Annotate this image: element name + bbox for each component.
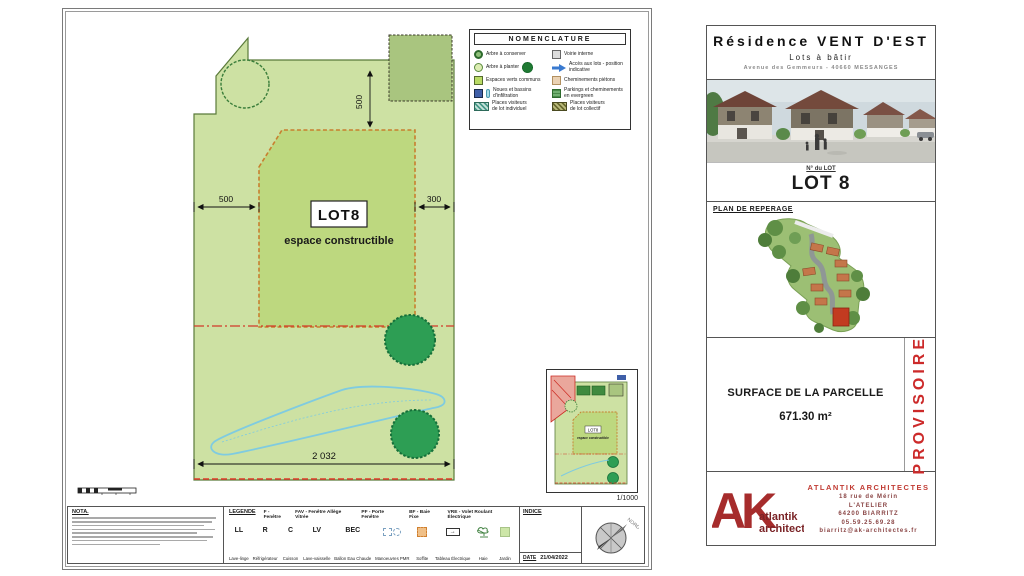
green-space-symbol — [474, 76, 483, 85]
architect-contact: ATLANTIK ARCHITECTES 18 rue de Mérin L'A… — [807, 483, 930, 535]
logo-word-architectes: architectes — [759, 523, 804, 535]
date-label: DATE — [523, 555, 536, 561]
location-map-image — [707, 210, 935, 336]
nomenclature-item: Parkings et cheminements en evergreen — [552, 87, 626, 100]
nomenclature-item: Voirie interne — [552, 48, 626, 61]
nomenclature-left-column: Arbre à conserver Arbre à planter Espace… — [474, 48, 548, 113]
indice-box: INDICE DATE 21/04/2022 — [520, 507, 582, 563]
legende-box: LEGENDE F - Fenêtre FAV - Fenêtre Allège… — [224, 507, 520, 563]
legende-item: Soffite — [413, 523, 431, 561]
tree-conserved-2 — [391, 410, 439, 458]
pmr-icon — [383, 528, 392, 536]
legende-def: VRE - Volet Roulant Électrique — [448, 510, 514, 520]
legende-item: C Cuisson — [281, 523, 299, 561]
nomenclature-item: Places visiteurs de lot individuel — [474, 100, 548, 113]
plan-sheet: LOT8 espace constructible 500 300 500 2 … — [62, 8, 652, 570]
nota-title: NOTA. — [72, 509, 219, 515]
evergreen-parking-symbol — [552, 89, 561, 98]
legende-item: R Réfrigérateur — [253, 523, 278, 561]
basin-symbol — [474, 89, 483, 98]
north-arrow-icon: NORD — [587, 510, 639, 560]
nota-text-line — [72, 521, 212, 523]
lot-number-label: N° du LOT — [707, 166, 935, 172]
garden-icon — [500, 527, 510, 537]
architect-email: biarritz@ak-architectes.fr — [807, 528, 930, 534]
nomenclature-item: Cheminements piétons — [552, 74, 626, 87]
legende-def: PF - Porte Fenêtre — [361, 510, 401, 520]
architect-logo: AK atlantik architectes — [712, 478, 804, 540]
constructible-area — [259, 130, 415, 327]
visitor-parking-individual-symbol — [474, 102, 489, 111]
nomenclature-item: Places visiteurs de lot collectif — [552, 100, 626, 113]
access-arrow-icon — [552, 64, 566, 72]
nota-text-line — [72, 525, 204, 527]
scale-bar — [78, 488, 136, 495]
status-provisoire: PROVISOIRE — [904, 338, 935, 471]
electrical-panel-icon: → — [446, 528, 460, 536]
title-bar: NOTA. LEGENDE F - Fenêtre FAV - Fenêtre … — [67, 506, 645, 564]
legende-item: Jardin — [496, 523, 514, 561]
dimension-label-left: 500 — [219, 194, 233, 204]
inset-lot-sublabel: espace constructible — [577, 436, 609, 440]
project-address: Avenue des Gemmeurs - 40660 MESSANGES — [707, 65, 935, 71]
nomenclature-title: NOMENCLATURE — [474, 33, 626, 45]
nomenclature-item: Arbre à planter — [474, 61, 548, 74]
architect-phone: 05.59.25.69.28 — [807, 520, 930, 526]
title-block-panel: Résidence VENT D'EST Lots à bâtir Avenue… — [706, 25, 936, 546]
legende-item: LL Lave-linge — [229, 523, 249, 561]
lot-sublabel: espace constructible — [284, 235, 393, 247]
inset-lot-label: LOT8 — [588, 428, 599, 433]
nomenclature-item: Noues et bassins d'infiltration — [474, 87, 548, 100]
lot-number-section: N° du LOT LOT 8 — [707, 163, 935, 202]
logo-word-atlantik: atlantik — [759, 511, 798, 523]
lot-number: LOT 8 — [707, 173, 935, 195]
nomenclature-legend: NOMENCLATURE Arbre à conserver Arbre à p… — [469, 29, 631, 130]
architect-address-1: 18 rue de Mérin — [807, 494, 930, 500]
inset-scale-label: 1/1000 — [546, 495, 638, 502]
date-value: 21/04/2022 — [540, 555, 568, 561]
lot-label: LOT8 — [318, 207, 360, 224]
tree-texture-symbol — [522, 62, 533, 73]
surface-section: SURFACE DE LA PARCELLE 671.30 m² PROVISO… — [707, 338, 935, 471]
surface-label: SURFACE DE LA PARCELLE — [727, 387, 883, 399]
tree-outline-topleft — [221, 60, 269, 108]
dimension-label-vertical: 500 — [354, 95, 364, 109]
key-plan-drawing: LOT8 espace constructible — [547, 370, 636, 491]
road-symbol — [552, 50, 561, 59]
dimension-label-bottom: 2 032 — [312, 451, 336, 462]
key-plan-inset: LOT8 espace constructible — [546, 369, 638, 493]
swale-symbol — [486, 89, 490, 98]
location-map-section: PLAN DE REPERAGE — [707, 202, 935, 338]
nota-text-line — [72, 517, 216, 519]
nota-box: NOTA. — [68, 507, 224, 563]
north-label: NORD — [626, 517, 639, 531]
architect-footer: AK atlantik architectes ATLANTIK ARCHITE… — [707, 471, 935, 545]
legende-item: Haie — [474, 523, 492, 561]
surface-value: 671.30 m² — [779, 411, 831, 423]
legende-item: Manoeuvres PMR — [375, 523, 409, 561]
tree-plant-symbol — [474, 63, 483, 72]
dimension-label-right: 300 — [427, 194, 441, 204]
legende-def: FAV - Fenêtre Allège Vitrée — [295, 510, 353, 520]
architect-address-2: L'ATELIER — [807, 503, 930, 509]
project-subtitle: Lots à bâtir — [707, 53, 935, 62]
nota-text-line — [72, 536, 213, 538]
indice-label: INDICE — [520, 507, 581, 517]
tree-conserved-1 — [385, 315, 435, 365]
visitor-parking-collective-symbol — [552, 102, 567, 111]
compass-box: NORD — [582, 507, 644, 563]
nota-text-line — [72, 540, 207, 542]
page: LOT8 espace constructible 500 300 500 2 … — [0, 0, 1024, 576]
architect-address-3: 64200 BIARRITZ — [807, 511, 930, 517]
project-title: Résidence VENT D'EST — [707, 33, 935, 49]
legende-def: BF - Baie Fixe — [409, 510, 439, 520]
hedge-tree-icon — [476, 526, 490, 538]
pedestrian-path-symbol — [552, 76, 561, 85]
tree-conserve-symbol — [474, 50, 483, 59]
legende-title: LEGENDE — [229, 509, 256, 515]
nota-text-line — [72, 532, 197, 534]
nota-text-line — [72, 544, 160, 546]
nota-text-line — [72, 529, 215, 531]
nomenclature-item: Espaces verts communs — [474, 74, 548, 87]
nomenclature-item: Arbre à conserver — [474, 48, 548, 61]
parking-evergreen-area — [389, 35, 452, 101]
legende-item: BEC Ballon Eau Chaude — [334, 523, 371, 561]
status-text: PROVISOIRE — [911, 335, 929, 475]
soffite-icon — [417, 527, 427, 537]
project-render-image — [707, 80, 935, 163]
legende-item: → Tableau Électrique — [435, 523, 470, 561]
architect-name: ATLANTIK ARCHITECTES — [807, 483, 930, 492]
nomenclature-item: Accès aux lots - position indicative — [552, 61, 626, 74]
nomenclature-right-column: Voirie interne Accès aux lots - position… — [552, 48, 626, 113]
pmr-circle-icon — [393, 528, 401, 536]
project-header: Résidence VENT D'EST Lots à bâtir Avenue… — [707, 26, 935, 80]
legende-item: LV Lave-vaisselle — [303, 523, 330, 561]
legende-def: F - Fenêtre — [264, 510, 288, 520]
